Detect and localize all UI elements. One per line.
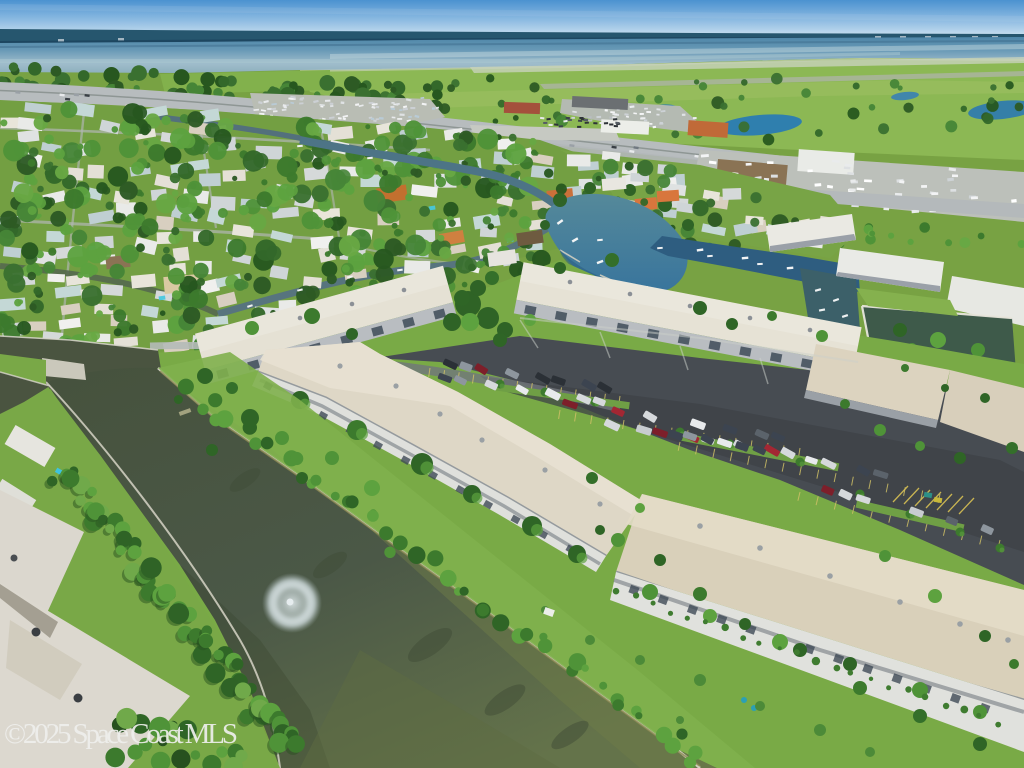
svg-text:©2025 Space Coast MLS: ©2025 Space Coast MLS bbox=[4, 718, 238, 750]
